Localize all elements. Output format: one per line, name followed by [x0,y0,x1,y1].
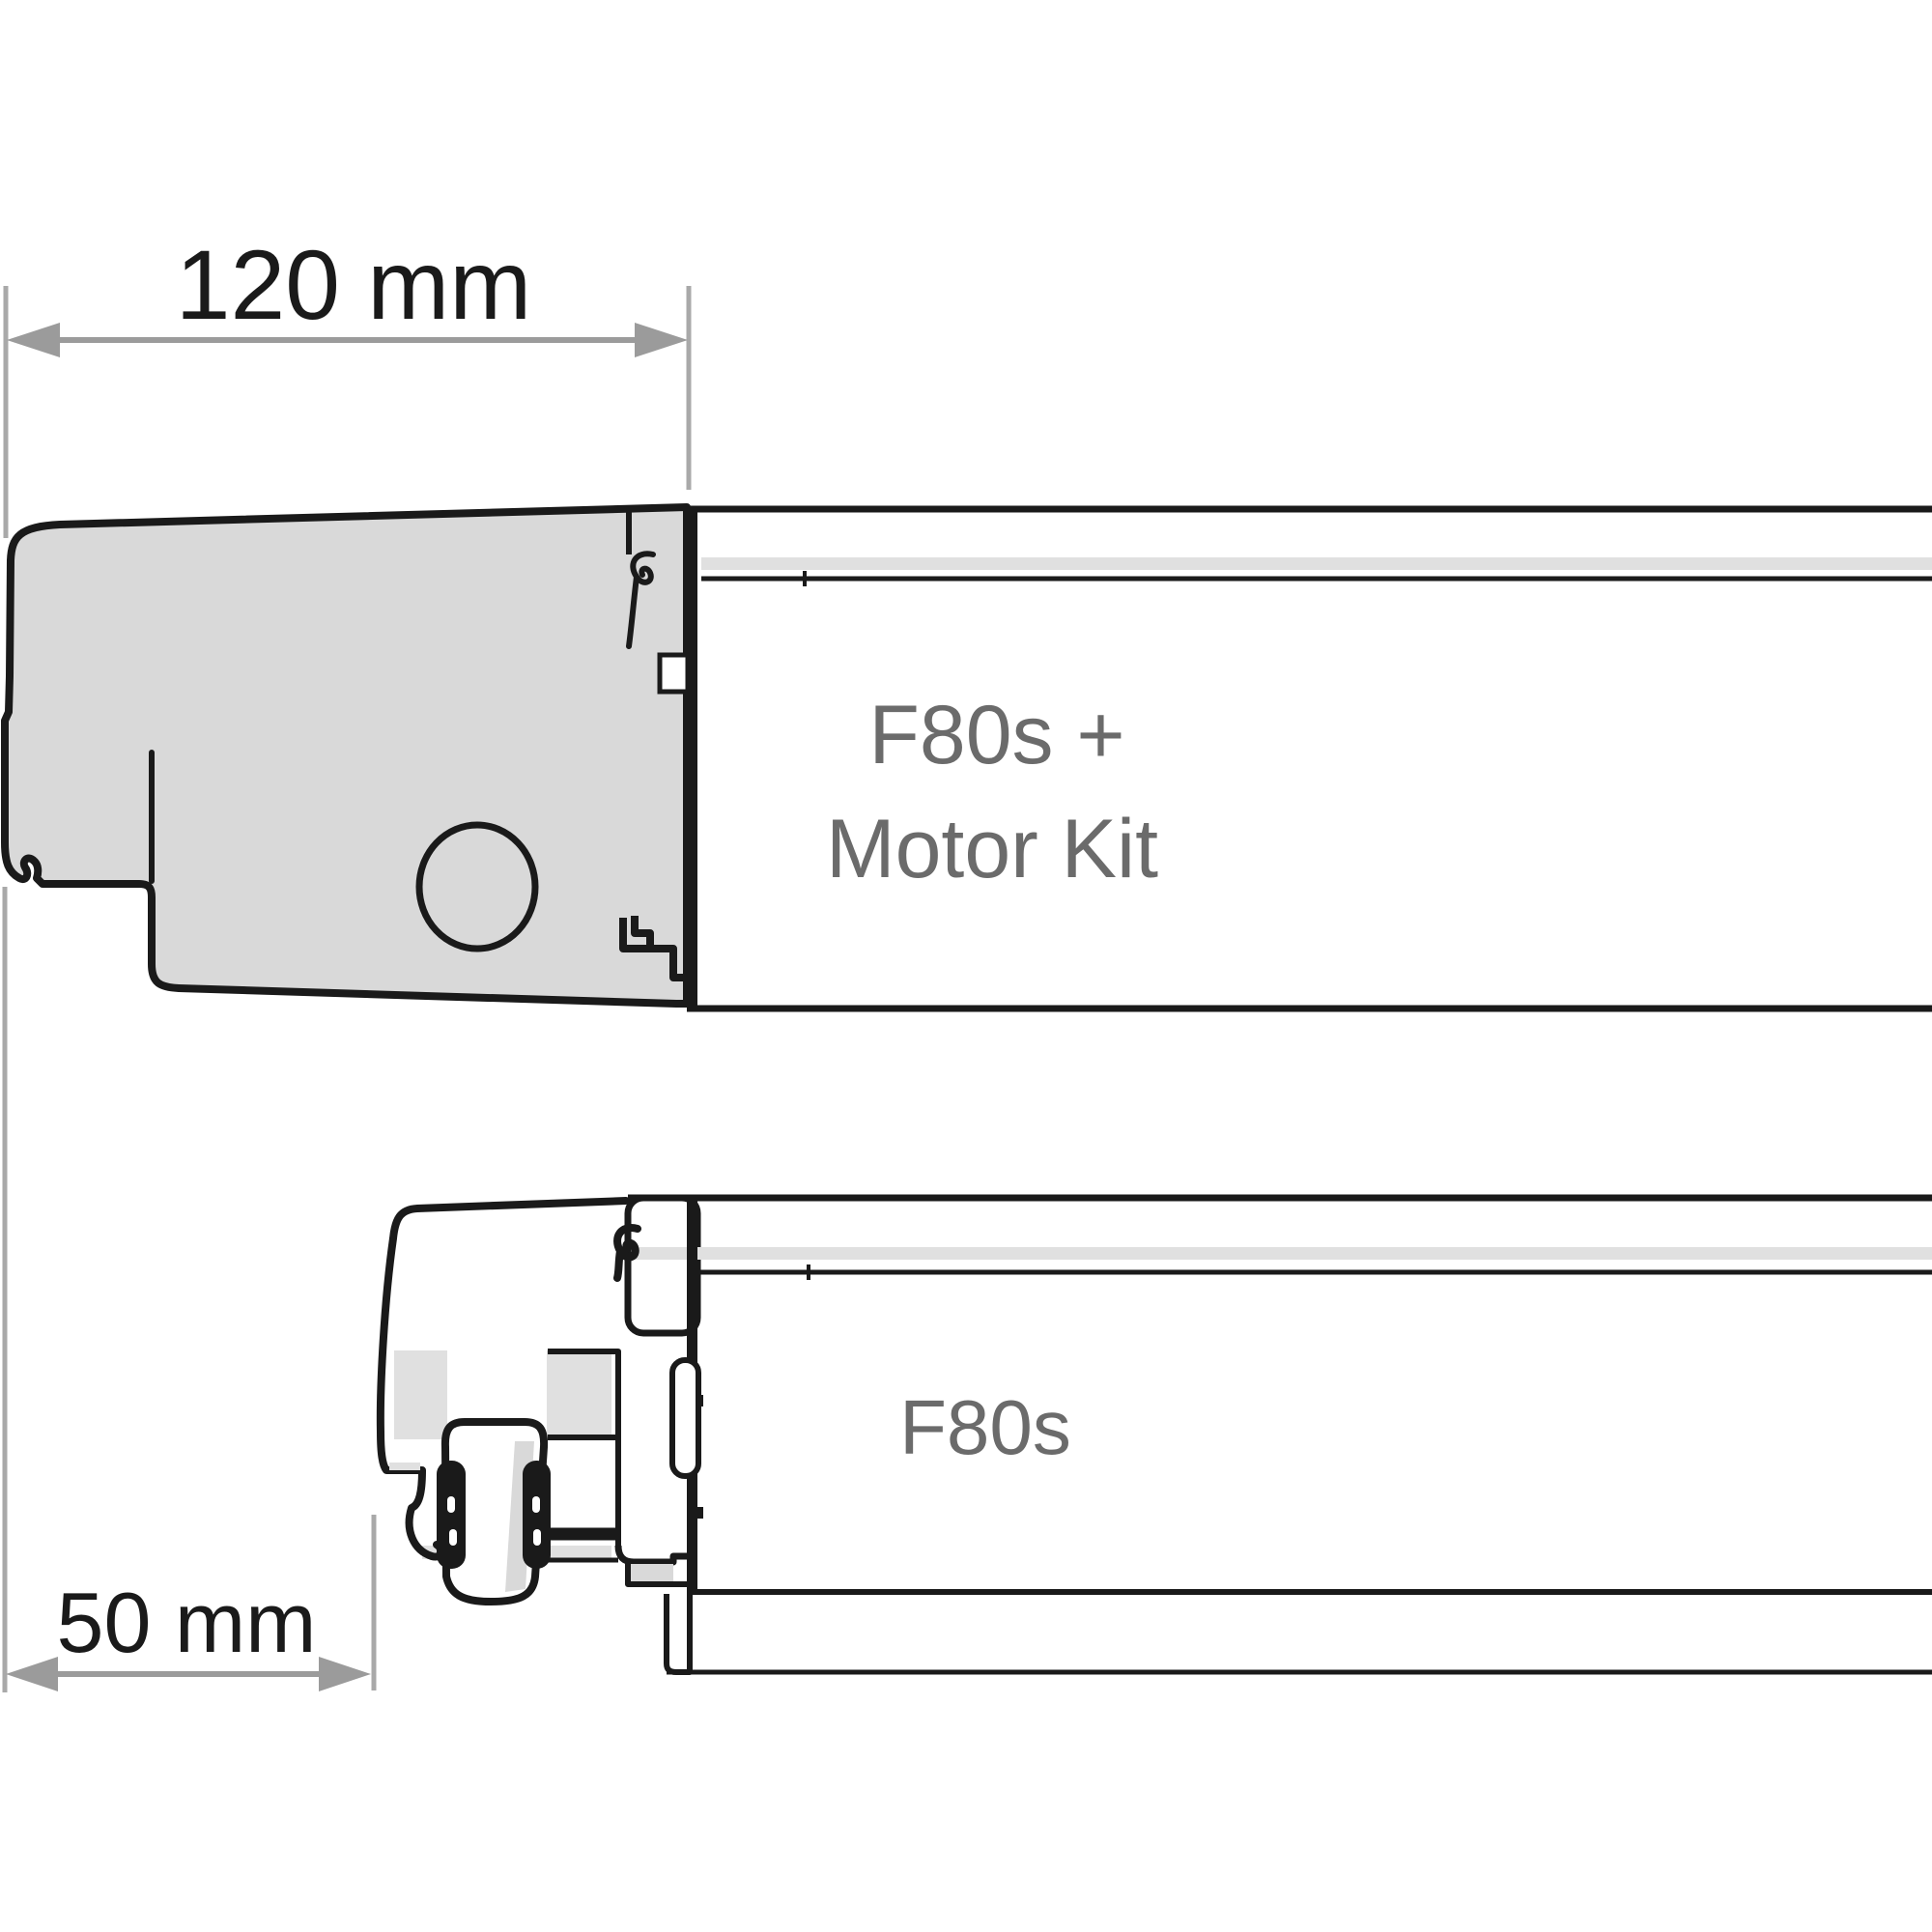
label-motor-kit-line2: Motor Kit [826,803,1158,895]
cable-hole [419,825,535,949]
leg-bracket-left [437,1461,466,1569]
mount-notch [660,655,688,692]
lid-ledge-shadow [389,1463,420,1470]
dimension-label-50mm: 50 mm [57,1575,317,1670]
case-highlight-band [701,557,1932,570]
top-diagram-f80s-motor-kit: 120 mm F80s + Motor Kit [5,230,1932,1011]
label-motor-kit-line1: F80s + [868,689,1124,781]
case-highlight-band [636,1247,1932,1260]
lead-bar [628,1564,673,1584]
case-profile-bottom [394,1195,1932,1672]
support-leg-assembly [437,1350,551,1602]
motor-kit-housing [5,507,688,1004]
bracket-slot [532,1496,540,1513]
dimension-arrowhead-right [319,1657,371,1691]
dimension-arrowhead-left [6,1657,58,1691]
dimension-arrowhead-left [7,323,60,357]
dimension-label-120mm: 120 mm [176,230,531,340]
label-f80s: F80s [899,1384,1071,1470]
bracket-slot [447,1496,455,1513]
dimension-arrowhead-right [635,323,688,357]
case-foot-step [618,1546,687,1562]
dimension-50mm: 50 mm [5,887,374,1692]
diagram-canvas: 120 mm F80s + Motor Kit [0,0,1932,1932]
end-cap-lower [667,1594,690,1672]
dimension-120mm: 120 mm [6,230,689,538]
wall-bracket-rail [672,1360,698,1476]
wall-nub-upper [697,1395,703,1406]
wall-nub-lower [697,1507,703,1519]
bracket-slot [449,1529,457,1546]
bracket-slot [533,1529,541,1546]
motor-kit-housing-outline [5,507,687,1004]
leg-bracket-right [523,1461,551,1569]
